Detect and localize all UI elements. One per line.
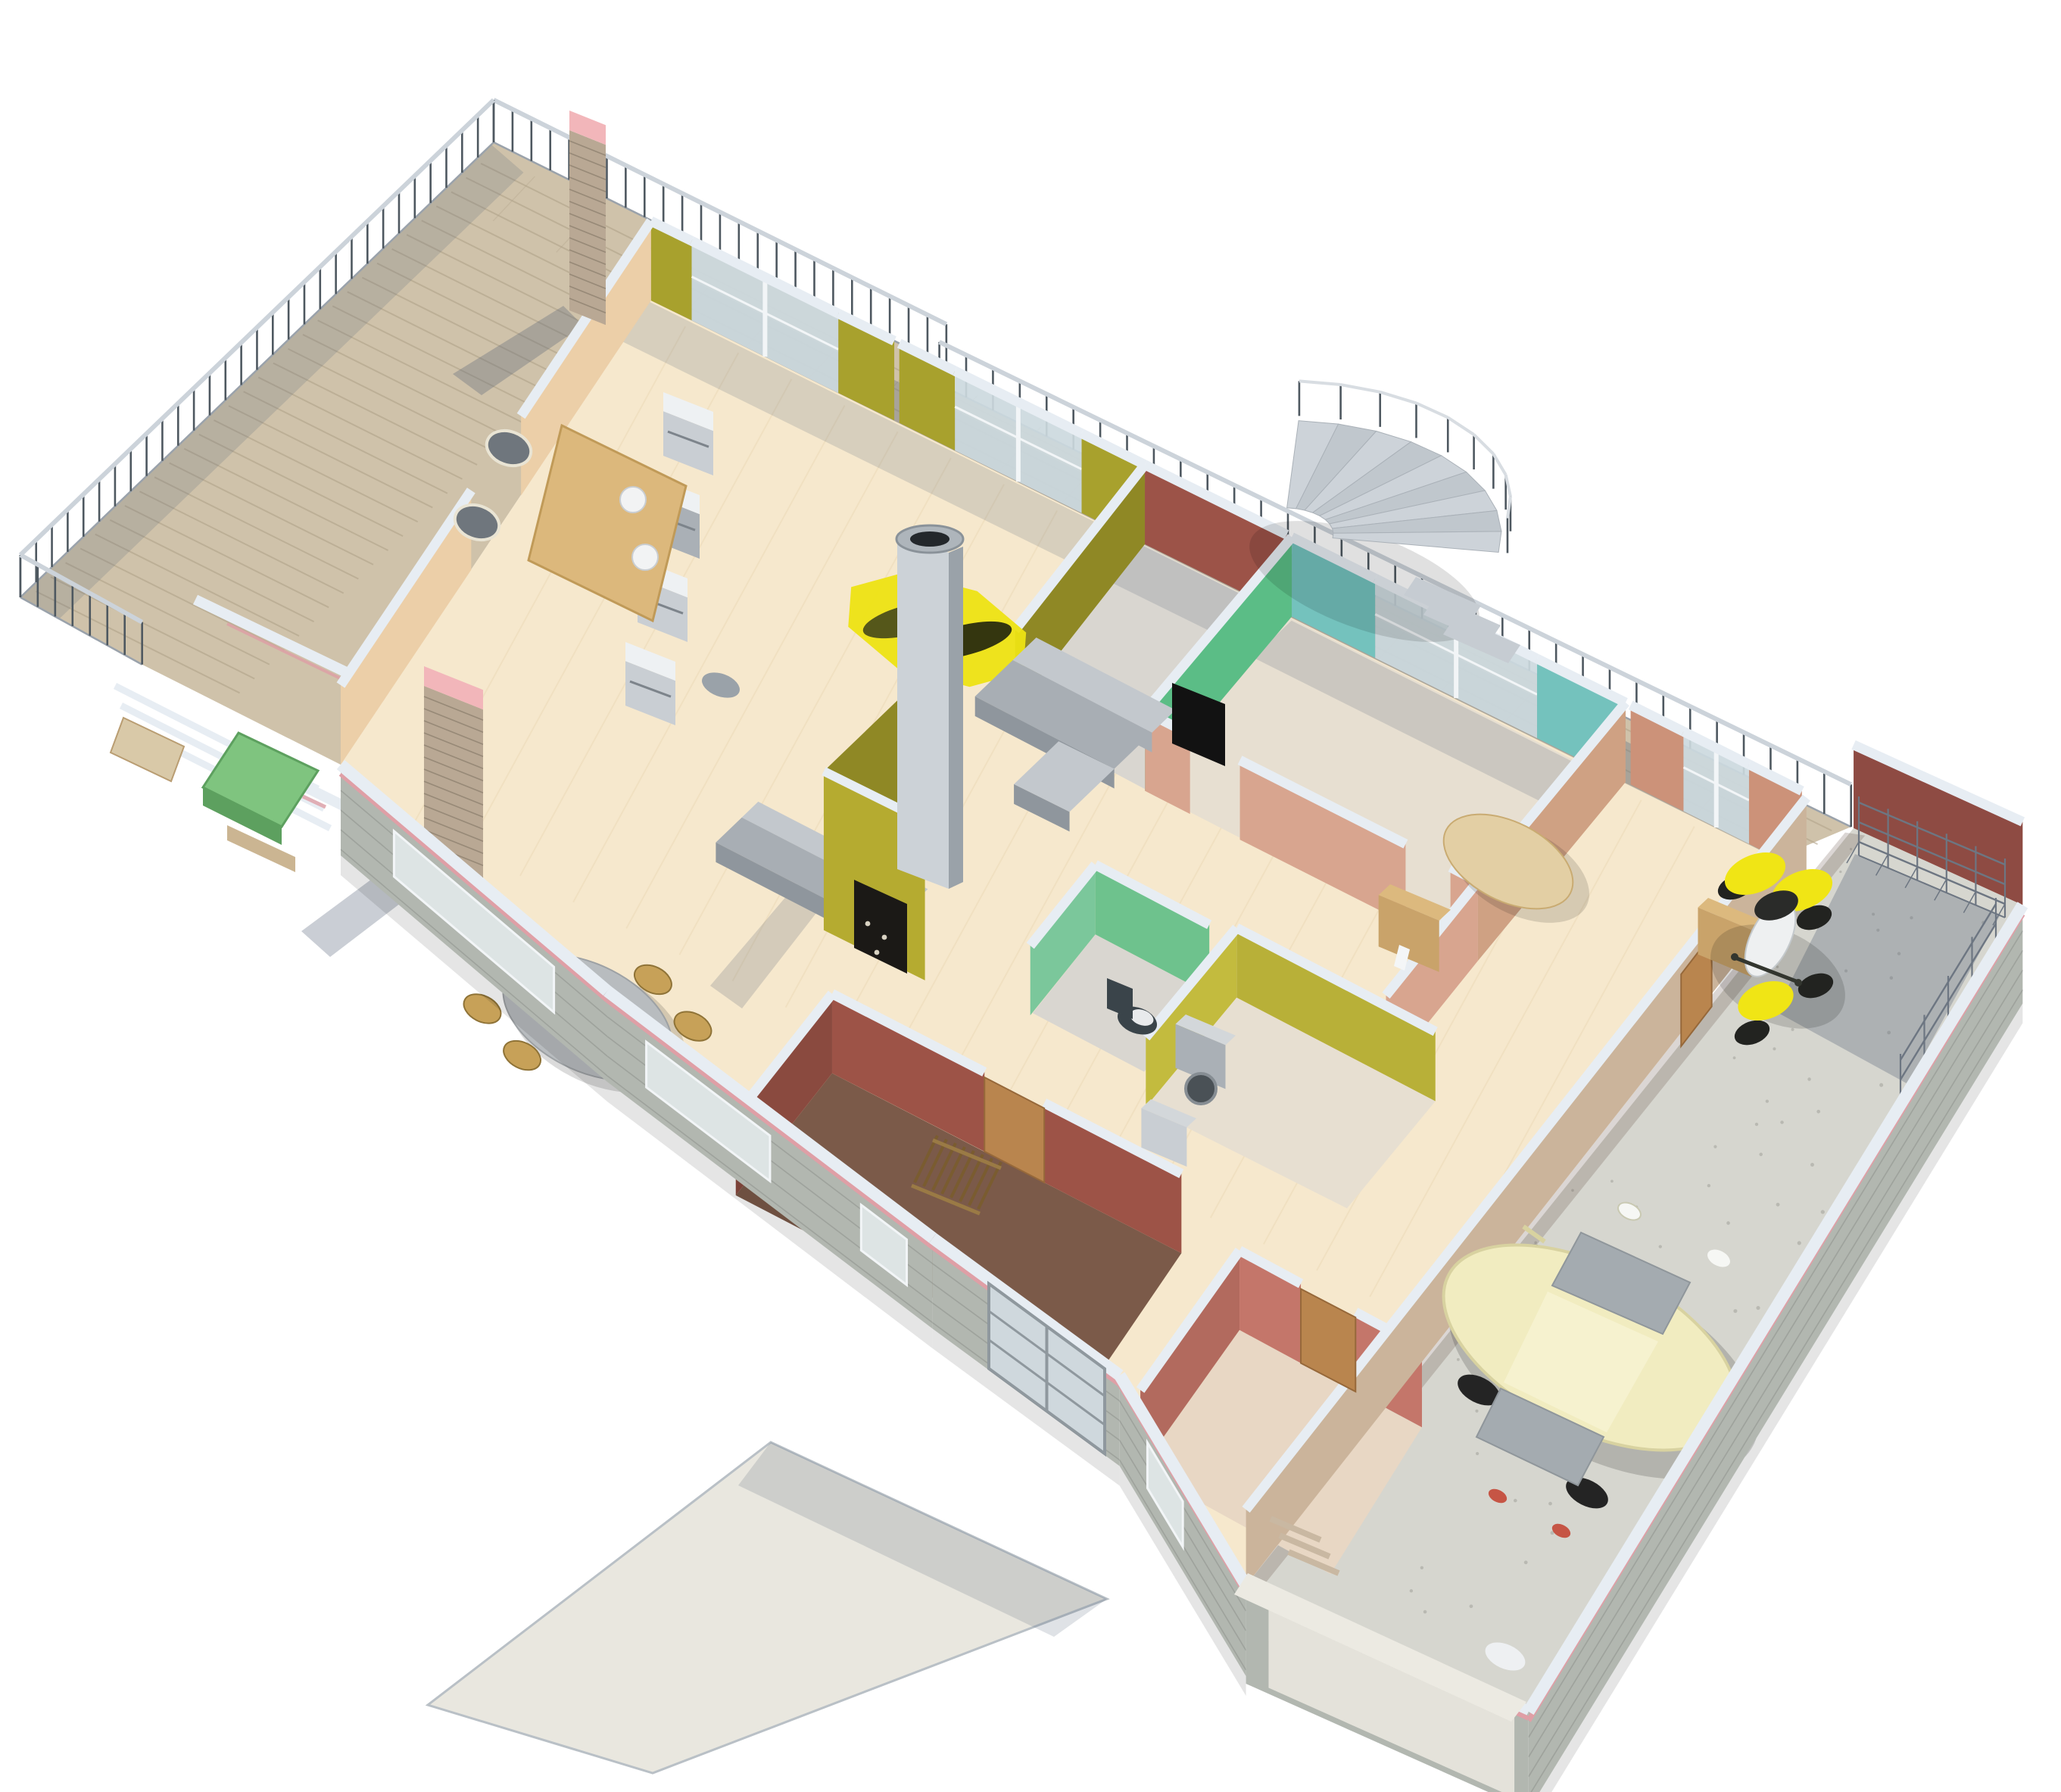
chimney-flue <box>910 531 949 547</box>
garden-bench <box>111 718 184 781</box>
chimney-side <box>949 547 963 889</box>
washer-door <box>1186 1074 1216 1104</box>
chimney-column <box>897 533 949 889</box>
outdoor-chair-white <box>620 487 646 513</box>
outdoor-chair-white <box>632 544 658 570</box>
entry-walkway <box>428 1442 1107 1773</box>
floorplan-render: Isometric 3D floor plan rendering of a s… <box>0 0 2061 1792</box>
